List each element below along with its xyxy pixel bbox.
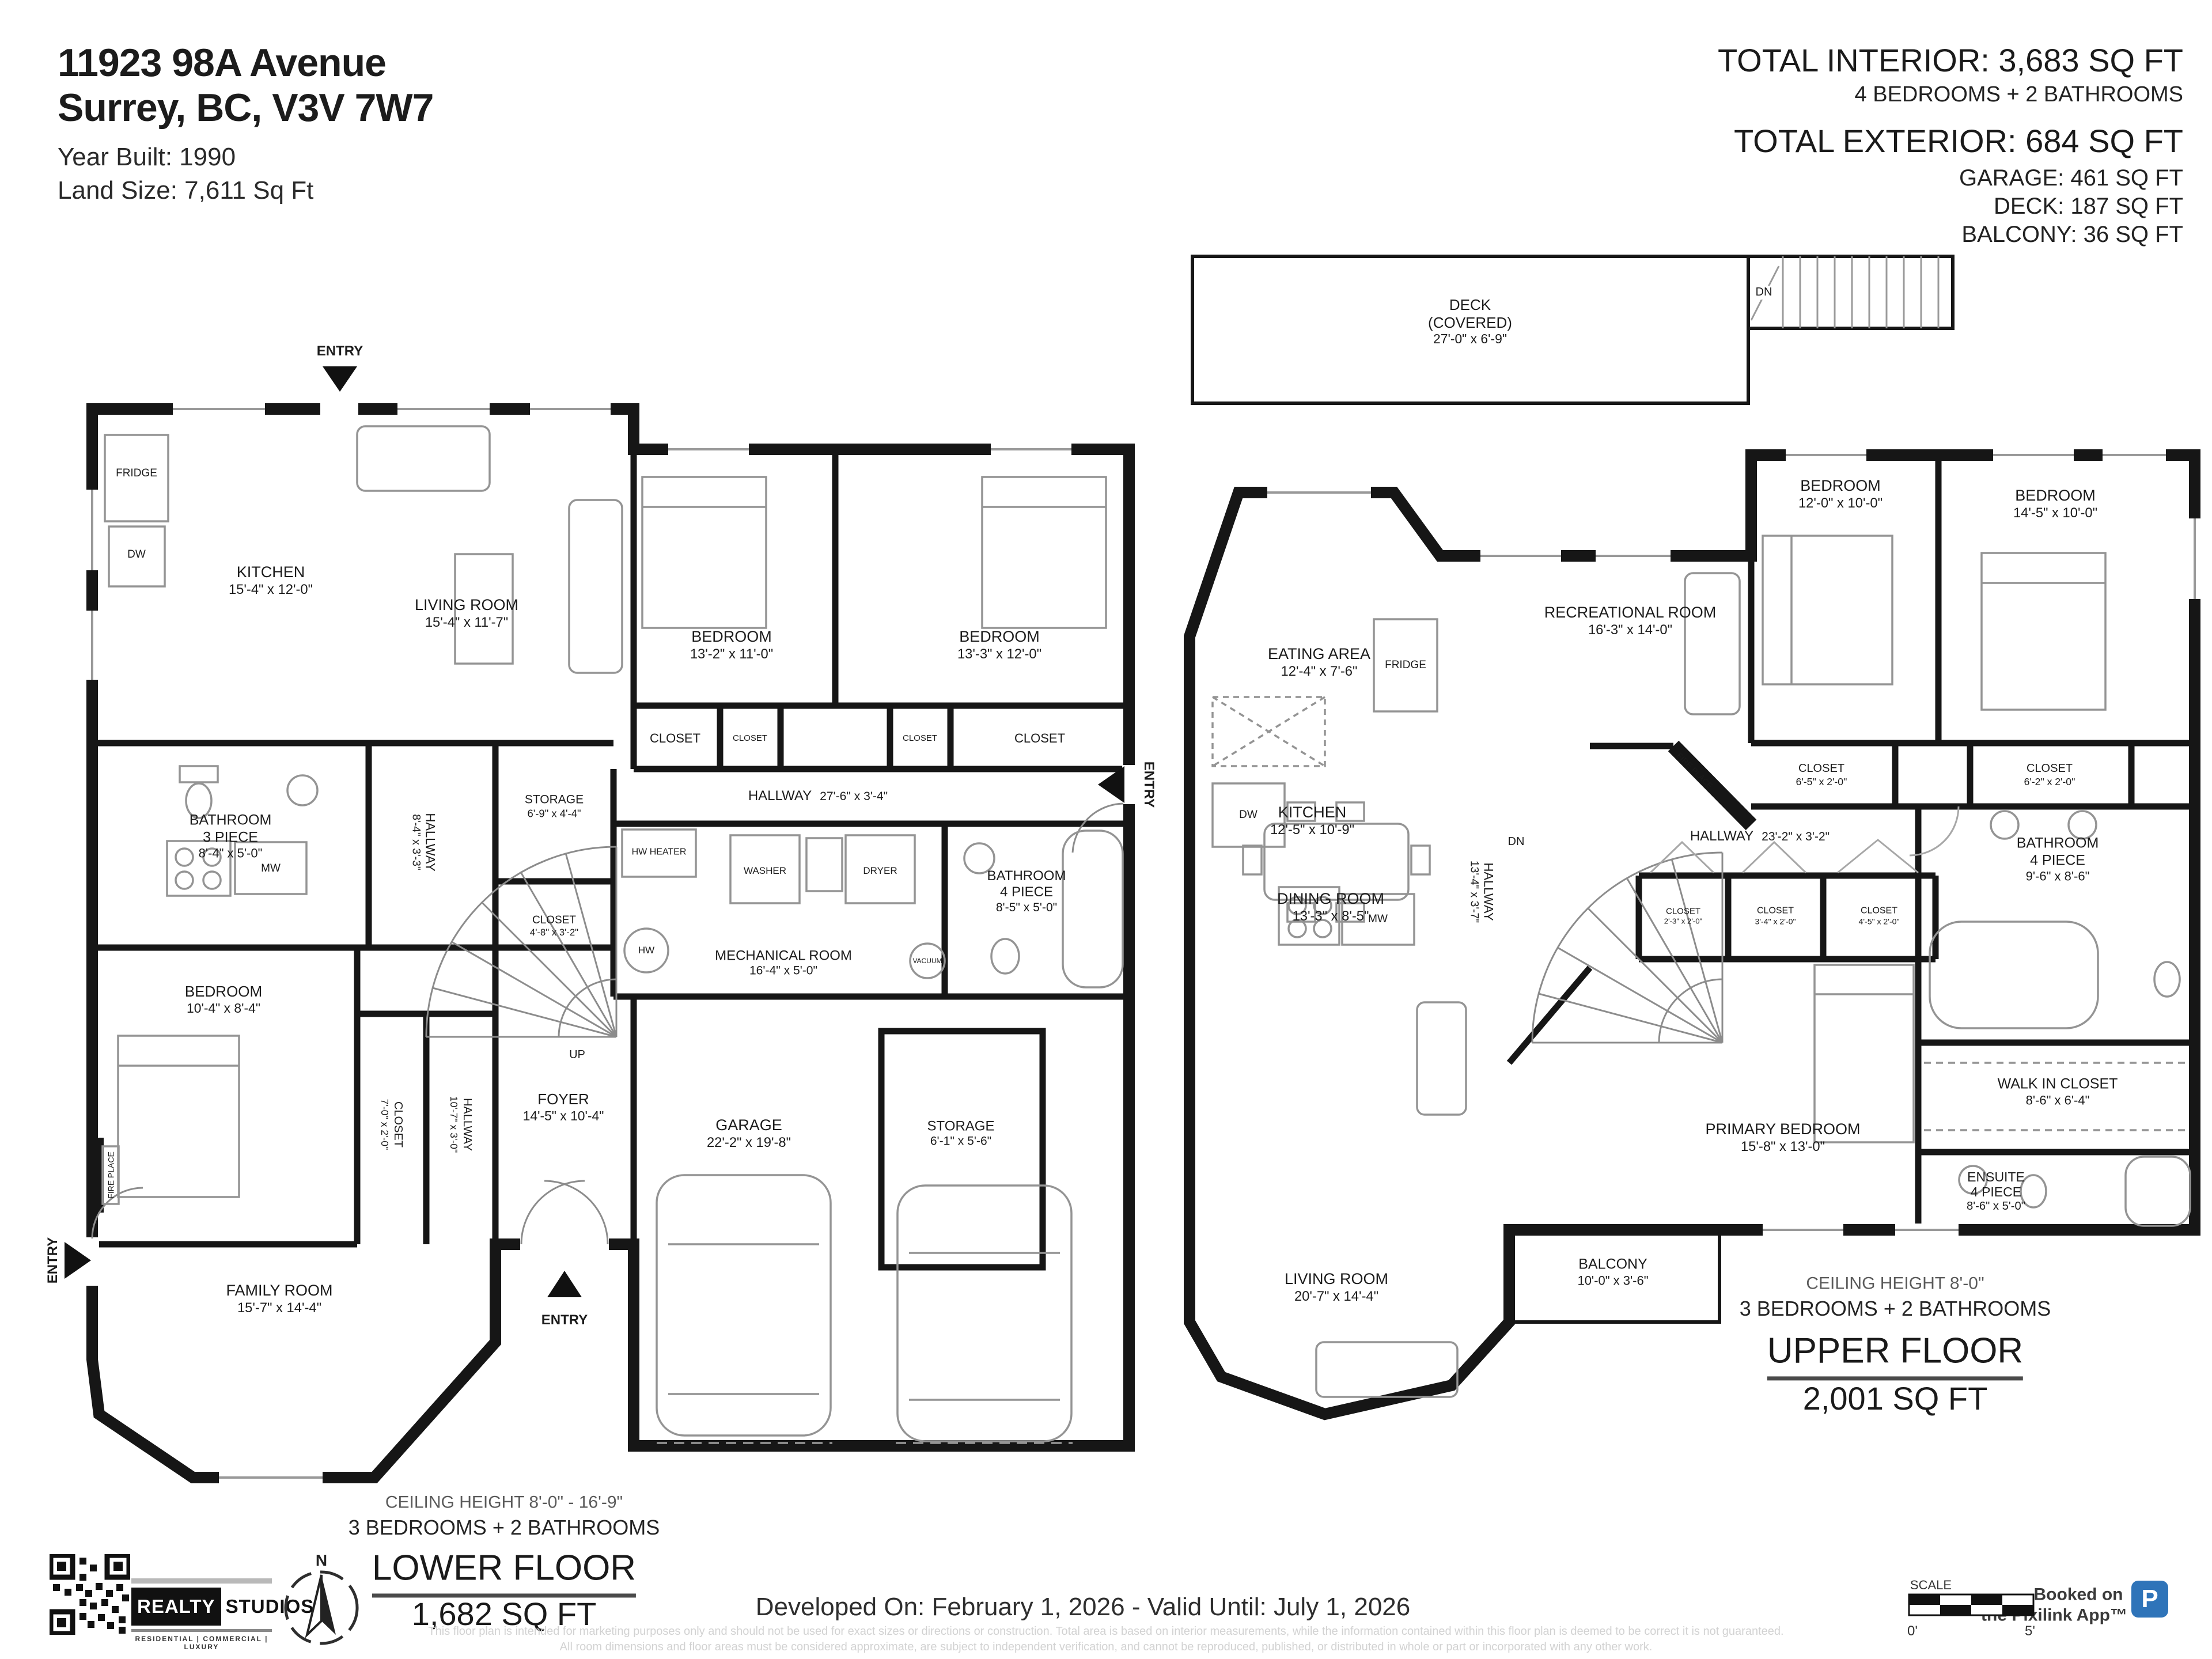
lower-stairs: [426, 847, 616, 1037]
total-interior: TOTAL INTERIOR: 3,683 SQ FT: [1718, 41, 2183, 79]
upper-floor-area: 2,001 SQ FT: [1803, 1380, 1988, 1418]
dryer-label: DRYER: [863, 865, 897, 877]
logo-realty: REALTY: [131, 1588, 221, 1626]
closet1-upper: CLOSET6'-5" x 2'-0": [1796, 762, 1847, 787]
dishwasher-label-lower: DW: [127, 548, 146, 561]
mechanical-room: MECHANICAL ROOM16'-4" x 5'-0": [715, 948, 852, 978]
room-recreational: RECREATIONAL ROOM16'-3" x 14'-0": [1544, 604, 1717, 638]
property-header: 11923 98A Avenue Surrey, BC, V3V 7W7 Yea…: [58, 40, 433, 205]
disclaimer-line1: This floor plan is intended for marketin…: [428, 1625, 1783, 1639]
closet3-lower: CLOSET: [903, 733, 937, 744]
upper-floor-title: UPPER FLOOR: [1767, 1330, 2023, 1372]
room-kitchen-upper: KITCHEN12'-5" x 10'-9": [1270, 804, 1354, 838]
room-bedroom1-lower: BEDROOM13'-2" x 11'-0": [690, 628, 773, 662]
hallway-v2-lower: HALLWAY10'-7" x 3'-0": [448, 1096, 474, 1153]
scale-bar: [1908, 1593, 2035, 1622]
lower-ceiling: CEILING HEIGHT 8'-0" - 16'-9": [385, 1492, 623, 1512]
entry-label-left: ENTRY: [45, 1237, 61, 1283]
microwave-label-lower: MW: [261, 862, 281, 875]
pixilink-line1: Booked on: [2034, 1584, 2123, 1604]
deck-stairs: [1751, 256, 1938, 328]
entry-label-side: ENTRY: [1141, 762, 1157, 808]
closet4-upper: CLOSET3'-4" x 2'-0": [1755, 906, 1796, 926]
washer-label: WASHER: [744, 865, 786, 877]
room-garage: GARAGE22'-2" x 19'-8": [707, 1116, 791, 1151]
fridge-label-lower: FRIDGE: [116, 467, 157, 480]
scale-start: 0': [1907, 1623, 1918, 1639]
dishwasher-label-upper: DW: [1239, 809, 1257, 821]
realty-studios-logo: REALTY STUDIOS RESIDENTIAL | COMMERCIAL …: [131, 1578, 272, 1651]
scale-label: SCALE: [1910, 1578, 1952, 1593]
hallway-main-lower: HALLWAY27'-6" x 3'-4": [748, 788, 888, 804]
room-family: FAMILY ROOM15'-7" x 14'-4": [226, 1282, 332, 1316]
deck-area: DECK: 187 SQ FT: [1718, 194, 2183, 219]
bathroom3-lower: BATHROOM3 PIECE8'-4" x 5'-0": [190, 812, 272, 861]
room-bedroom2-lower: BEDROOM13'-3" x 12'-0": [957, 628, 1041, 662]
storage1-lower: STORAGE6'-9" x 4'-4": [525, 793, 584, 820]
total-interior-sub: 4 BEDROOMS + 2 BATHROOMS: [1718, 82, 2183, 107]
vacuum-label: VACUUM: [912, 957, 942, 965]
floor-plan-sheet: 11923 98A Avenue Surrey, BC, V3V 7W7 Yea…: [0, 0, 2212, 1659]
totals-block: TOTAL INTERIOR: 3,683 SQ FT 4 BEDROOMS +…: [1718, 41, 2183, 248]
year-built: Year Built: 1990: [58, 143, 433, 172]
room-bedroom3-lower: BEDROOM10'-4" x 8'-4": [185, 983, 262, 1016]
hallway-upper: HALLWAY23'-2" x 3'-2": [1690, 828, 1830, 844]
up-label: UP: [569, 1048, 585, 1062]
hallway-v-upper: HALLWAY13'-4" x 3'-7": [1468, 861, 1496, 923]
dn-label-upper: DN: [1505, 835, 1528, 849]
hw-label: HW: [638, 945, 654, 956]
upper-ceiling: CEILING HEIGHT 8'-0": [1806, 1273, 1984, 1293]
address-line2: Surrey, BC, V3V 7W7: [58, 85, 433, 130]
upper-stairs: [1532, 853, 1722, 1043]
room-living-upper: LIVING ROOM20'-7" x 14'-4": [1285, 1270, 1388, 1305]
room-walk-in-closet: WALK IN CLOSET8'-6" x 6'-4": [1998, 1075, 2118, 1107]
room-kitchen-lower: KITCHEN15'-4" x 12'-0": [229, 563, 313, 598]
lower-floor-title: LOWER FLOOR: [372, 1547, 636, 1589]
pixilink-logo: P: [2131, 1581, 2168, 1618]
closet2-upper: CLOSET6'-2" x 2'-0": [2024, 762, 2075, 787]
lower-config: 3 BEDROOMS + 2 BATHROOMS: [349, 1516, 660, 1540]
room-deck: DECK(COVERED)27'-0" x 6'-9": [1428, 296, 1512, 347]
dn-label-deck: DN: [1752, 286, 1776, 300]
hallway-v1-lower: HALLWAY8'-4" x 3'-3": [410, 813, 438, 871]
qr-code: [50, 1554, 130, 1635]
room-primary-bedroom: PRIMARY BEDROOM15'-8" x 13'-0": [1705, 1120, 1860, 1155]
hw-heater-label: HW HEATER: [632, 847, 687, 858]
garage-area: GARAGE: 461 SQ FT: [1718, 165, 2183, 191]
room-bedroom2-upper: BEDROOM14'-5" x 10'-0": [2013, 487, 2097, 521]
room-ensuite: ENSUITE4 PIECE8'-6" x 5'-0": [1967, 1170, 2025, 1213]
room-eating-area: EATING AREA12'-4" x 7'-6": [1268, 645, 1370, 680]
storage2-lower: STORAGE6'-1" x 5'-6": [927, 1118, 995, 1149]
fireplace-label-lower: FIRE PLACE: [107, 1152, 116, 1199]
entry-label-bottom: ENTRY: [541, 1312, 588, 1328]
entry-label-top: ENTRY: [317, 343, 363, 359]
total-exterior: TOTAL EXTERIOR: 684 SQ FT: [1718, 122, 2183, 160]
compass-icon: N: [272, 1547, 370, 1657]
logo-tagline: RESIDENTIAL | COMMERCIAL | LUXURY: [131, 1635, 272, 1651]
closet3-upper: CLOSET2'-3" x 2'-0": [1664, 906, 1702, 925]
closet4-lower: CLOSET: [1014, 731, 1065, 746]
room-bedroom1-upper: BEDROOM12'-0" x 10'-0": [1798, 477, 1883, 512]
room-bathroom-upper: BATHROOM4 PIECE9'-6" x 8'-6": [2017, 835, 2099, 884]
closet5-upper: CLOSET4'-5" x 2'-0": [1859, 906, 1900, 926]
closet5-lower: CLOSET4'-8" x 3'-2": [530, 914, 578, 938]
address-line1: 11923 98A Avenue: [58, 40, 433, 85]
fridge-label-upper: FRIDGE: [1385, 659, 1426, 672]
room-foyer: FOYER14'-5" x 10'-4": [523, 1090, 604, 1124]
closet2-lower: CLOSET: [733, 733, 767, 744]
balcony-area: BALCONY: 36 SQ FT: [1718, 222, 2183, 248]
room-living-lower: LIVING ROOM15'-4" x 11'-7": [415, 596, 518, 631]
compass-n: N: [316, 1551, 327, 1569]
scale-end: 5': [2025, 1623, 2035, 1639]
upper-config: 3 BEDROOMS + 2 BATHROOMS: [1740, 1297, 2051, 1321]
room-dining: DINING ROOM13'-3" x 8'-5": [1277, 890, 1384, 925]
closet1-lower: CLOSET: [650, 731, 700, 746]
closet6-lower: CLOSET7'-0" x 2'-0": [379, 1099, 404, 1150]
disclaimer-line2: All room dimensions and floor areas must…: [560, 1641, 1653, 1654]
bathroom4-lower: BATHROOM4 PIECE8'-5" x 5'-0": [987, 868, 1066, 915]
land-size: Land Size: 7,611 Sq Ft: [58, 176, 433, 205]
room-balcony: BALCONY10'-0" x 3'-6": [1577, 1256, 1648, 1287]
developed-line: Developed On: February 1, 2026 - Valid U…: [756, 1592, 1410, 1622]
